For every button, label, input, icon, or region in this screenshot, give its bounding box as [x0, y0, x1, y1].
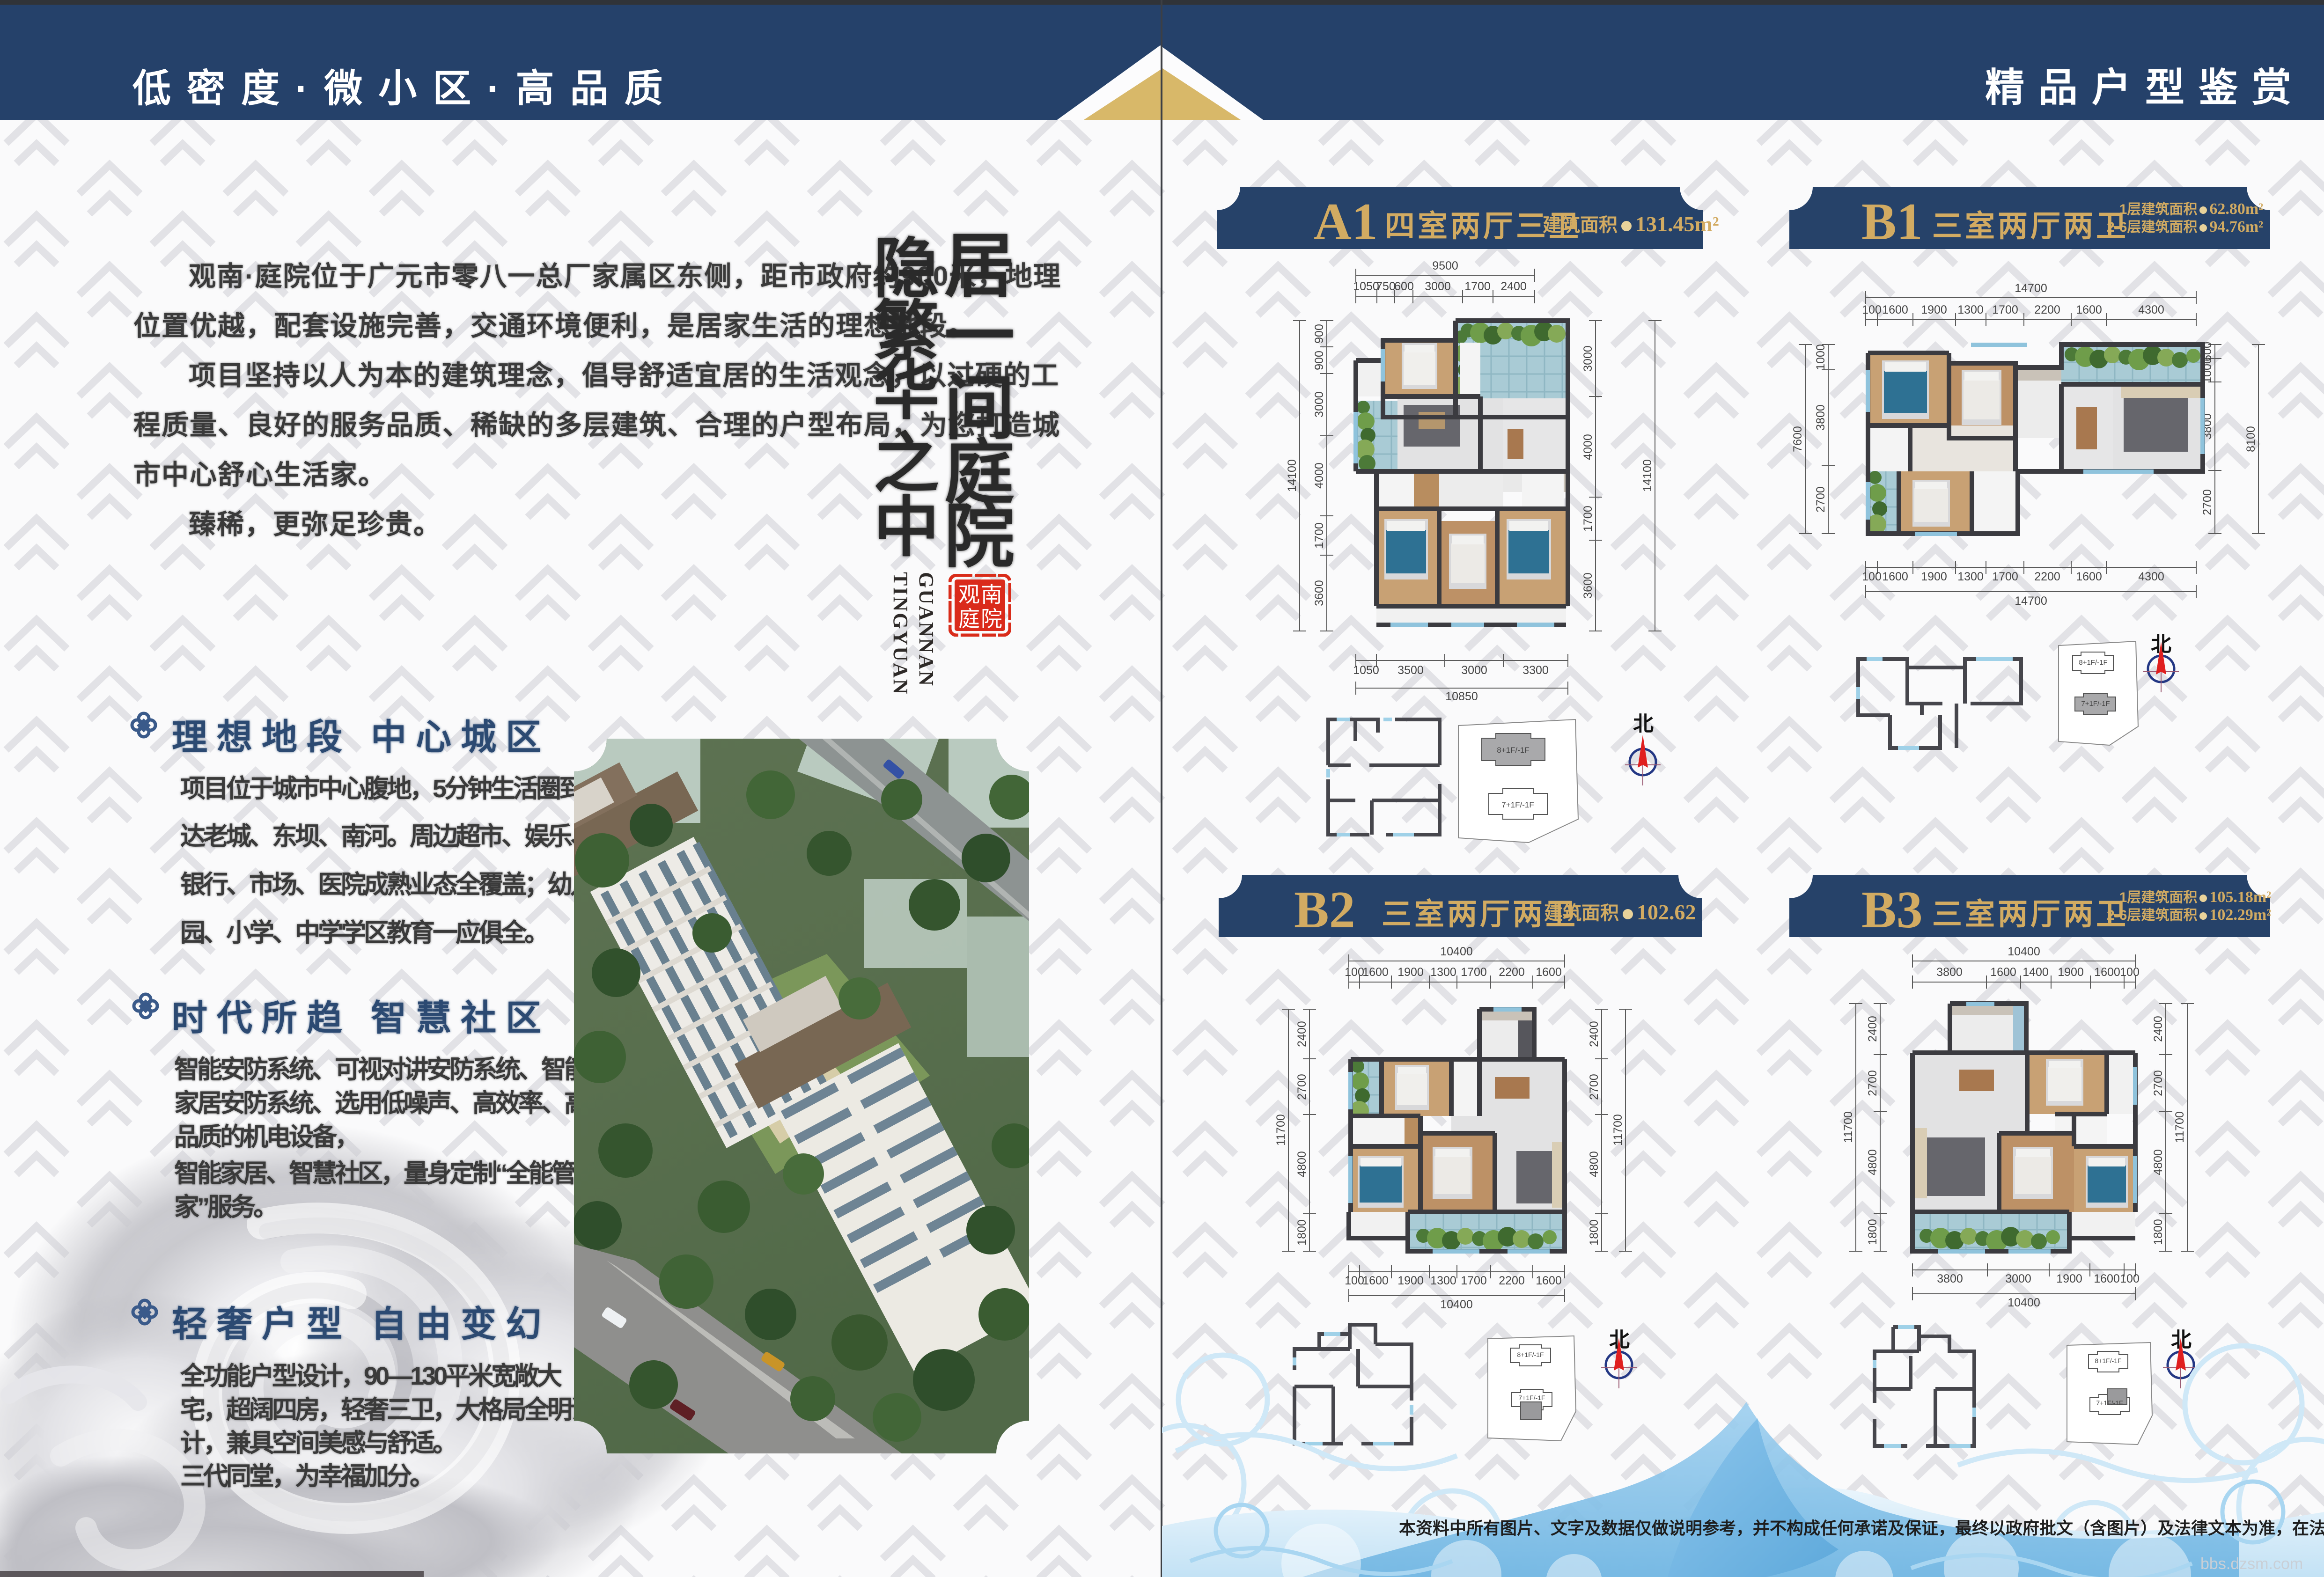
svg-text:3000: 3000: [1581, 345, 1595, 372]
svg-text:7+1F/-1F: 7+1F/-1F: [1501, 800, 1534, 809]
svg-text:9500: 9500: [1432, 259, 1458, 272]
svg-text:1700: 1700: [1461, 966, 1487, 979]
svg-text:1800: 1800: [2152, 1219, 2165, 1245]
svg-text:1000: 1000: [1814, 344, 1827, 370]
svg-text:100: 100: [1862, 570, 1882, 583]
svg-text:4800: 4800: [2152, 1149, 2165, 1175]
svg-text:10400: 10400: [2008, 945, 2040, 958]
svg-text:1700: 1700: [1992, 303, 2018, 316]
svg-text:1700: 1700: [1461, 1274, 1487, 1287]
svg-text:2400: 2400: [1295, 1021, 1309, 1047]
svg-text:1600: 1600: [1536, 966, 1562, 979]
svg-text:8+1F/-1F: 8+1F/-1F: [1497, 746, 1529, 755]
svg-text:10400: 10400: [1440, 1298, 1473, 1311]
svg-text:2400: 2400: [1866, 1016, 1879, 1042]
svg-text:11700: 11700: [1274, 1114, 1287, 1146]
svg-text:1600: 1600: [1362, 966, 1389, 979]
svg-text:2700: 2700: [1866, 1070, 1879, 1096]
svg-text:750: 750: [1376, 280, 1396, 293]
svg-text:3600: 3600: [1581, 572, 1595, 599]
svg-text:3000: 3000: [2005, 1272, 2031, 1285]
svg-text:1400: 1400: [2022, 966, 2049, 979]
svg-text:1700: 1700: [1313, 522, 1326, 549]
svg-text:1800: 1800: [1588, 1219, 1601, 1246]
svg-text:1050: 1050: [1353, 664, 1379, 677]
svg-text:2400: 2400: [1500, 280, 1527, 293]
svg-text:1900: 1900: [2056, 1272, 2082, 1285]
svg-text:2200: 2200: [2034, 570, 2060, 583]
svg-text:14100: 14100: [1641, 459, 1654, 492]
svg-text:2400: 2400: [2152, 1016, 2165, 1042]
svg-text:2200: 2200: [1499, 1274, 1525, 1287]
svg-text:1600: 1600: [2076, 570, 2102, 583]
svg-text:8+1F/-1F: 8+1F/-1F: [2079, 659, 2107, 667]
svg-text:900: 900: [1313, 324, 1326, 344]
svg-text:14700: 14700: [2015, 282, 2047, 295]
svg-text:10400: 10400: [2008, 1296, 2040, 1309]
svg-text:1600: 1600: [1882, 570, 1908, 583]
svg-text:4300: 4300: [2138, 570, 2164, 583]
svg-text:1800: 1800: [1295, 1219, 1309, 1246]
svg-text:1300: 1300: [1430, 966, 1456, 979]
svg-text:1600: 1600: [1990, 966, 2016, 979]
svg-text:1300: 1300: [1957, 570, 1984, 583]
svg-text:2200: 2200: [2034, 303, 2060, 316]
svg-text:7+1F/-1F: 7+1F/-1F: [2081, 700, 2110, 708]
svg-text:11700: 11700: [2173, 1111, 2186, 1143]
svg-text:600: 600: [1394, 280, 1414, 293]
svg-text:1900: 1900: [1921, 570, 1947, 583]
svg-text:1300: 1300: [1957, 303, 1984, 316]
svg-text:100: 100: [1345, 1274, 1364, 1287]
svg-text:4300: 4300: [2138, 303, 2164, 316]
svg-text:14700: 14700: [2015, 594, 2047, 608]
svg-text:1900: 1900: [1397, 1274, 1424, 1287]
svg-text:4800: 4800: [1588, 1151, 1601, 1177]
svg-text:4000: 4000: [1313, 462, 1326, 489]
svg-text:3000: 3000: [1313, 391, 1326, 418]
svg-text:100: 100: [2120, 966, 2140, 979]
svg-text:3000: 3000: [1425, 280, 1451, 293]
svg-text:4800: 4800: [1295, 1151, 1309, 1177]
svg-text:3000: 3000: [1461, 664, 1487, 677]
svg-text:11700: 11700: [1842, 1111, 1855, 1143]
svg-text:1600: 1600: [1362, 1274, 1389, 1287]
svg-text:3800: 3800: [1814, 404, 1827, 431]
svg-text:7600: 7600: [1791, 426, 1804, 452]
svg-text:2700: 2700: [2152, 1070, 2165, 1096]
svg-text:1700: 1700: [1581, 506, 1595, 532]
svg-text:100: 100: [1345, 966, 1364, 979]
svg-text:8100: 8100: [2244, 426, 2258, 452]
svg-text:4800: 4800: [1866, 1149, 1879, 1175]
svg-text:3500: 3500: [1397, 664, 1424, 677]
svg-text:2200: 2200: [1499, 966, 1525, 979]
svg-text:3600: 3600: [1313, 580, 1326, 606]
svg-text:1800: 1800: [1866, 1219, 1879, 1245]
svg-text:2700: 2700: [2201, 489, 2214, 515]
svg-text:900: 900: [1313, 351, 1326, 370]
svg-text:1900: 1900: [1921, 303, 1947, 316]
svg-text:100: 100: [2120, 1272, 2140, 1285]
svg-text:1050: 1050: [1353, 280, 1379, 293]
svg-text:3800: 3800: [1936, 966, 1963, 979]
svg-text:1700: 1700: [1992, 570, 2018, 583]
svg-text:1700: 1700: [1464, 280, 1491, 293]
svg-text:3800: 3800: [1937, 1272, 1963, 1285]
svg-text:1900: 1900: [1397, 966, 1424, 979]
svg-text:2700: 2700: [1588, 1074, 1601, 1100]
svg-text:2700: 2700: [1295, 1074, 1309, 1100]
svg-text:2700: 2700: [1814, 486, 1827, 513]
svg-text:1600: 1600: [1536, 1274, 1562, 1287]
svg-text:1900: 1900: [2058, 966, 2084, 979]
svg-text:1600: 1600: [1882, 303, 1908, 316]
svg-text:1300: 1300: [1430, 1274, 1456, 1287]
svg-text:100: 100: [1862, 303, 1882, 316]
svg-text:1600: 1600: [2094, 966, 2120, 979]
svg-text:1600: 1600: [2076, 303, 2102, 316]
svg-text:10400: 10400: [1440, 945, 1473, 958]
svg-text:11700: 11700: [1611, 1114, 1625, 1146]
svg-text:10850: 10850: [1445, 690, 1478, 703]
svg-text:4000: 4000: [1581, 434, 1595, 460]
svg-text:3300: 3300: [1522, 664, 1549, 677]
svg-text:14100: 14100: [1286, 459, 1299, 492]
svg-text:1600: 1600: [2094, 1272, 2120, 1285]
svg-text:2400: 2400: [1588, 1021, 1601, 1047]
